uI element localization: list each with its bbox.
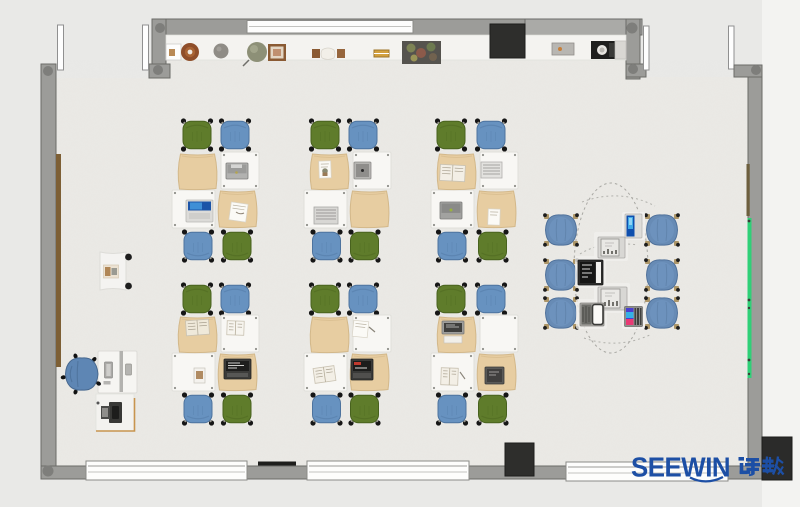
- svg-text:SEEWIN: SEEWIN: [631, 452, 730, 483]
